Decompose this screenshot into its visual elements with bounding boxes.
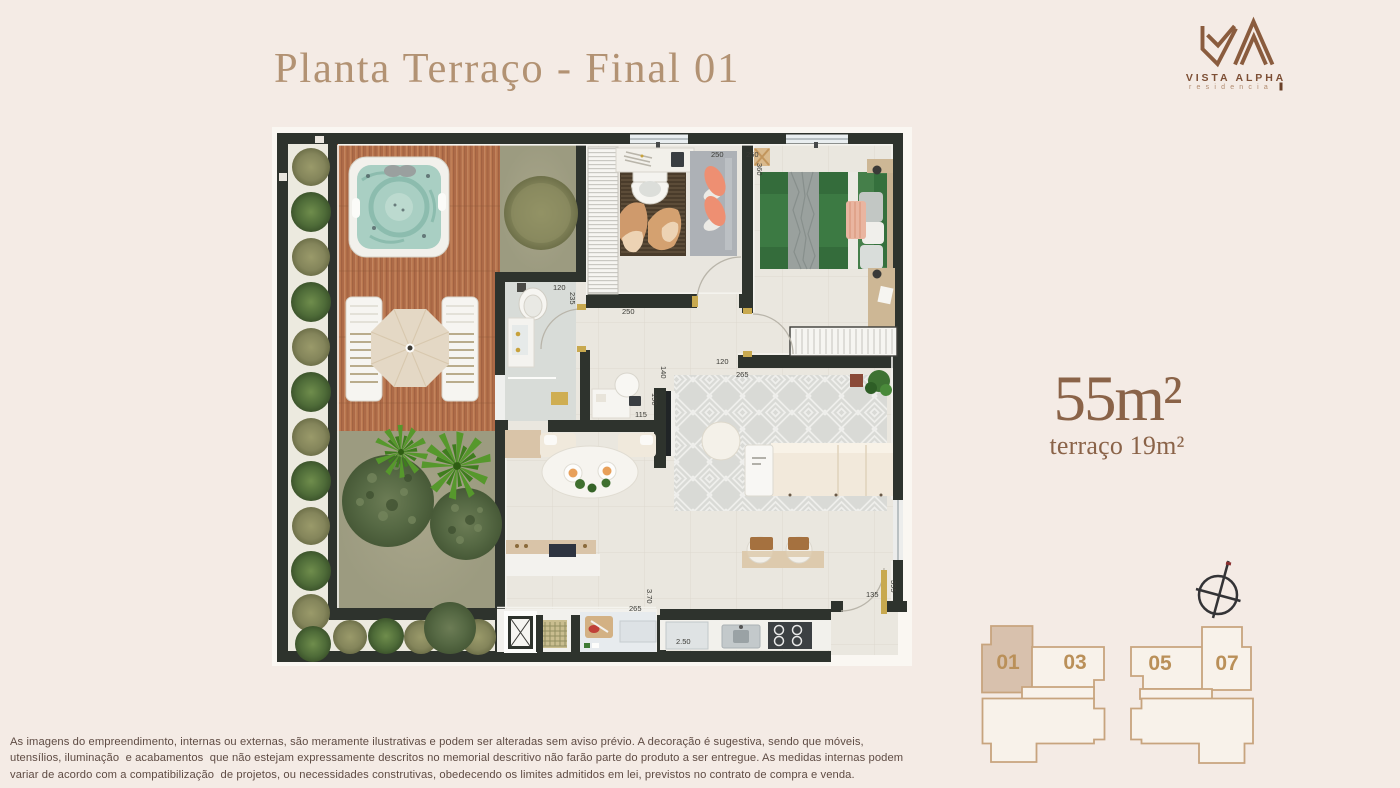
- svg-text:235: 235: [568, 292, 577, 305]
- svg-text:residencia: residencia: [1189, 84, 1273, 91]
- svg-text:360: 360: [755, 163, 764, 176]
- svg-text:07: 07: [1215, 652, 1238, 675]
- svg-text:135: 135: [866, 590, 879, 599]
- svg-text:140: 140: [659, 366, 668, 379]
- svg-text:190: 190: [650, 393, 659, 406]
- svg-text:3.70: 3.70: [645, 589, 654, 604]
- svg-text:265: 265: [736, 370, 749, 379]
- svg-text:01: 01: [996, 651, 1020, 674]
- svg-text:120: 120: [716, 357, 729, 366]
- svg-text:VISTA ALPHA: VISTA ALPHA: [1186, 72, 1286, 84]
- svg-text:03: 03: [1063, 651, 1086, 674]
- svg-text:250: 250: [622, 307, 635, 316]
- svg-text:05: 05: [1148, 652, 1172, 675]
- svg-text:120: 120: [553, 283, 566, 292]
- svg-text:115: 115: [635, 410, 647, 419]
- svg-text:395: 395: [889, 580, 898, 593]
- svg-text:250: 250: [711, 150, 724, 159]
- svg-text:250: 250: [746, 150, 759, 159]
- svg-text:265: 265: [629, 604, 642, 613]
- svg-text:2.50: 2.50: [676, 637, 691, 646]
